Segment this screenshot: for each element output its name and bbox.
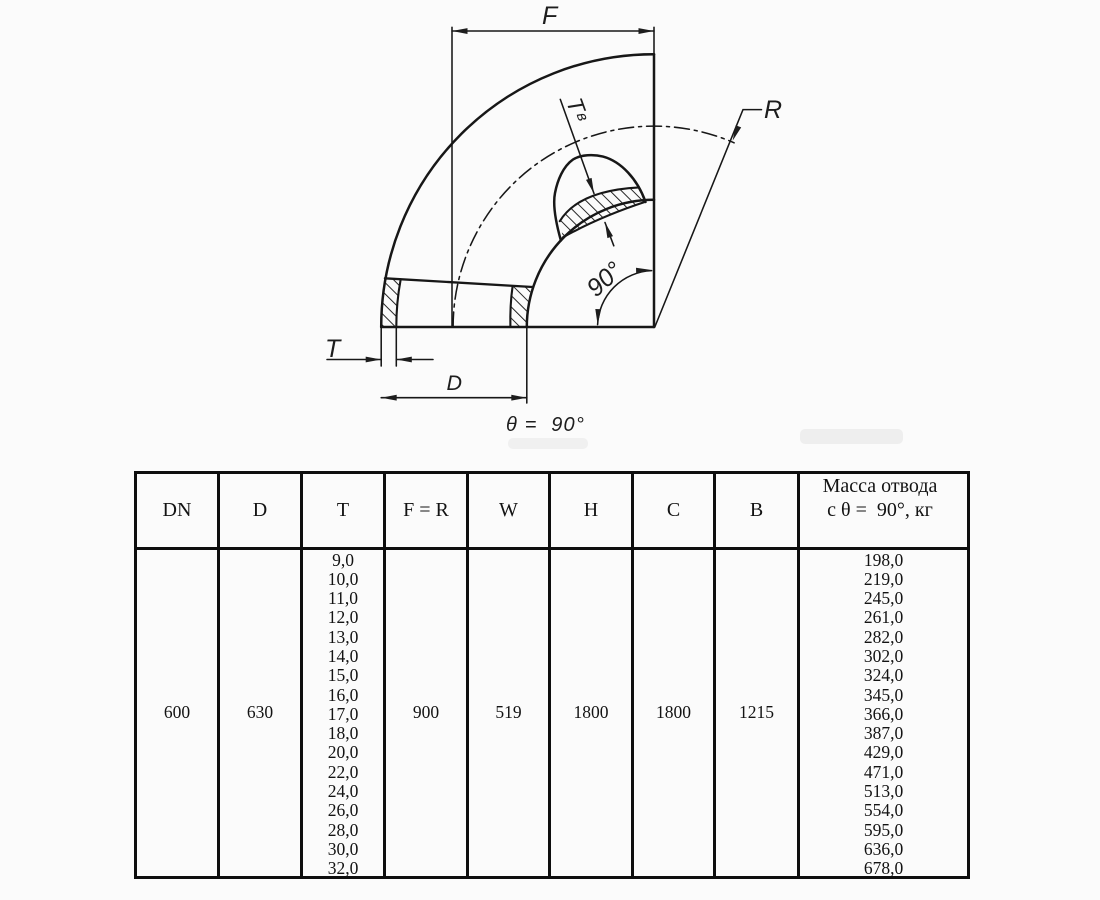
svg-text:F: F: [542, 2, 559, 30]
svg-text:90°: 90°: [581, 256, 628, 302]
svg-text:T: T: [325, 335, 342, 363]
svg-text:θ = 90°: θ = 90°: [506, 414, 585, 436]
svg-text:R: R: [764, 96, 782, 124]
svg-text:D: D: [447, 371, 463, 395]
